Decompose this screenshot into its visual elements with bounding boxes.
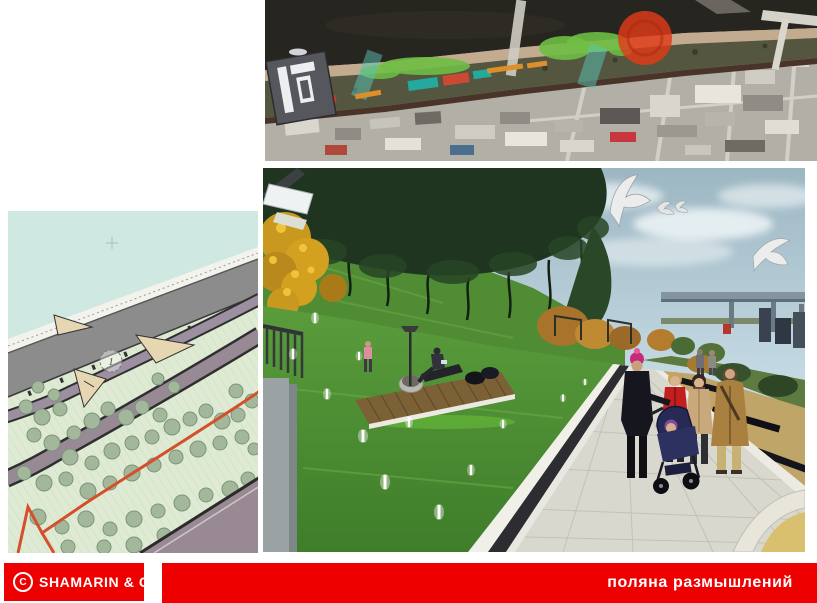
boat [289,49,307,56]
site-marker [618,11,672,65]
water-sheen [325,11,565,39]
brand-name: SHAMARIN & C [39,574,150,590]
perspective-render-image [263,168,805,552]
footer-brand: C SHAMARIN & C [4,563,144,601]
copyright-icon: C [13,572,33,592]
slide-title: поляна размышлений [607,574,793,592]
aerial-map-graphic [265,0,817,161]
area-label: 1 [108,356,114,368]
pillar-shade [289,384,297,552]
aerial-map-image [265,0,817,161]
concrete-pillar [263,378,289,552]
footer-title-bar: поляна размышлений [162,563,817,603]
site-plan-image: 1 [8,211,258,553]
render-graphic [263,168,805,552]
presentation-slide: 1 [0,0,817,603]
far-tree-2 [758,375,798,397]
site-plan-graphic: 1 [8,211,258,553]
building-footprint [266,51,336,124]
